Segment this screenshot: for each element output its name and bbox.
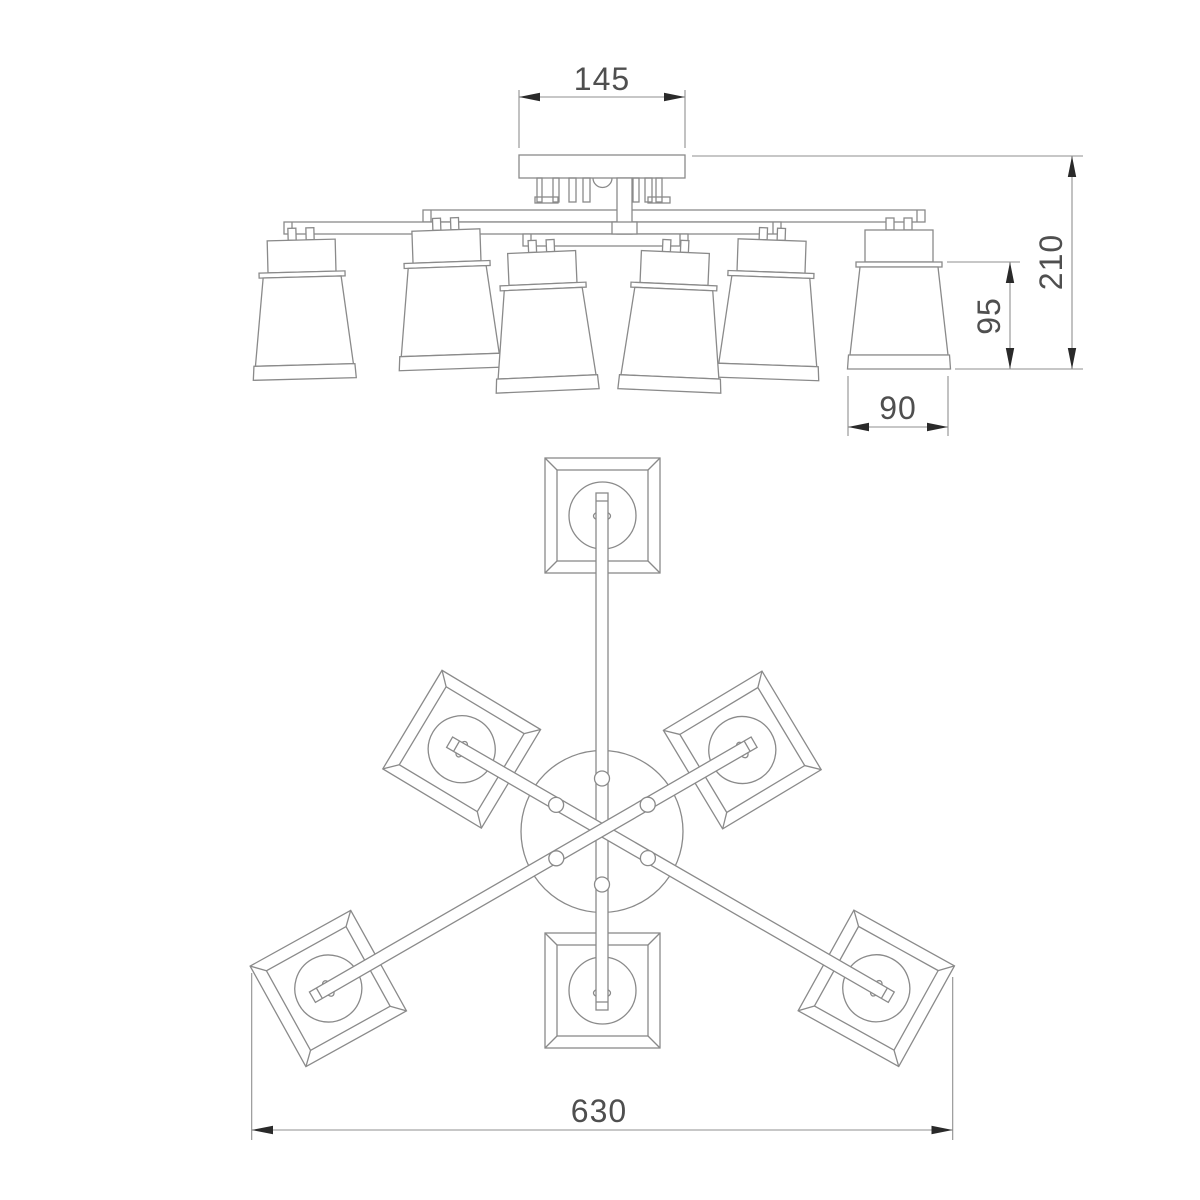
lampshade-side-2 [394,216,502,371]
bottom-plan-view: 630 [250,458,954,1140]
lampshade-side-3 [490,238,599,393]
canopy-bracket [537,178,542,202]
technical-drawing-canvas: 145 210 95 90 [0,0,1200,1200]
canopy-bracket [569,178,576,202]
arrowhead [1068,156,1076,177]
dim-label-fixture-height: 210 [1033,234,1069,290]
canopy-bracket [656,178,662,202]
arrowhead [848,423,869,431]
arrowhead [519,93,540,101]
arm-bars [284,178,925,246]
arrowhead [252,1126,273,1134]
dim-shade-height: 95 [947,262,1020,369]
dim-label-overall-diameter: 630 [571,1093,627,1129]
dim-canopy-width: 145 [519,61,685,148]
lampshade-side-6 [848,218,951,369]
ceiling-canopy [519,155,685,203]
arm-bar-upper [423,210,925,222]
dim-shade-width: 90 [848,376,948,436]
lampshade-side-4 [618,238,727,393]
lampshade-side-1 [249,227,356,381]
canopy-plate [519,155,685,178]
canopy-bracket [583,178,590,202]
arrowhead [1006,262,1014,283]
technical-drawing-page: 145 210 95 90 [0,0,1200,1200]
canopy-bracket [633,178,639,202]
arrowhead [664,93,685,101]
lampshade-side-5 [716,226,824,381]
arm-diagonal-ul-lr [447,737,895,1002]
central-column-foot [612,222,637,234]
arrowhead [1006,348,1014,369]
arrowhead [932,1126,953,1134]
dim-label-shade-height: 95 [971,297,1007,335]
dim-label-shade-width: 90 [879,390,917,426]
arm-vertical [596,493,608,1010]
arrowhead [1068,348,1076,369]
arm-diagonal-ur-ll [309,737,757,1002]
arm-bar-middle [284,222,781,234]
dim-label-canopy-width: 145 [574,61,630,97]
front-elevation-view: 145 210 95 90 [249,61,1083,436]
canopy-dome-detail [593,178,612,187]
arrowhead [927,423,948,431]
